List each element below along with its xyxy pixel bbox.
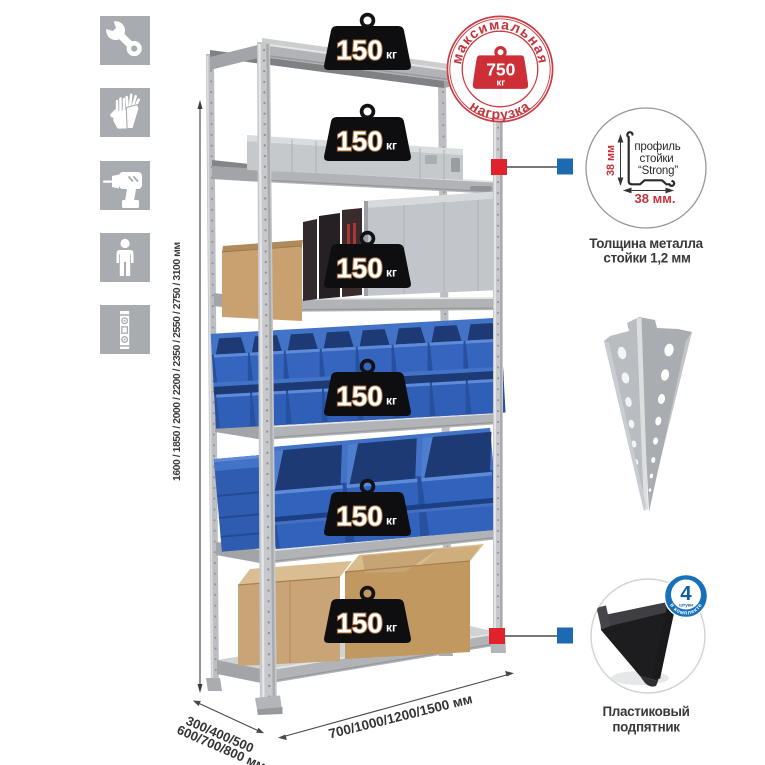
svg-text:38 мм.: 38 мм.	[635, 191, 676, 206]
svg-text:38 мм: 38 мм	[605, 145, 617, 176]
svg-text:профиль: профиль	[634, 141, 680, 153]
svg-text:“Strong”: “Strong”	[638, 165, 678, 177]
svg-text:Пластиковый: Пластиковый	[602, 704, 689, 719]
svg-text:1600 / 1850 / 2000 / 2200 / 23: 1600 / 1850 / 2000 / 2200 / 2350 / 2550 …	[172, 242, 183, 481]
svg-text:700/1000/1200/1500 мм: 700/1000/1200/1500 мм	[327, 691, 474, 741]
svg-text:стойки: стойки	[640, 153, 674, 165]
svg-text:подпятник: подпятник	[612, 720, 680, 735]
svg-text:стойки 1,2 мм: стойки 1,2 мм	[603, 251, 690, 266]
svg-text:штуки: штуки	[679, 603, 693, 608]
svg-text:кг: кг	[496, 77, 505, 88]
svg-text:Толщина металла: Толщина металла	[589, 236, 703, 251]
